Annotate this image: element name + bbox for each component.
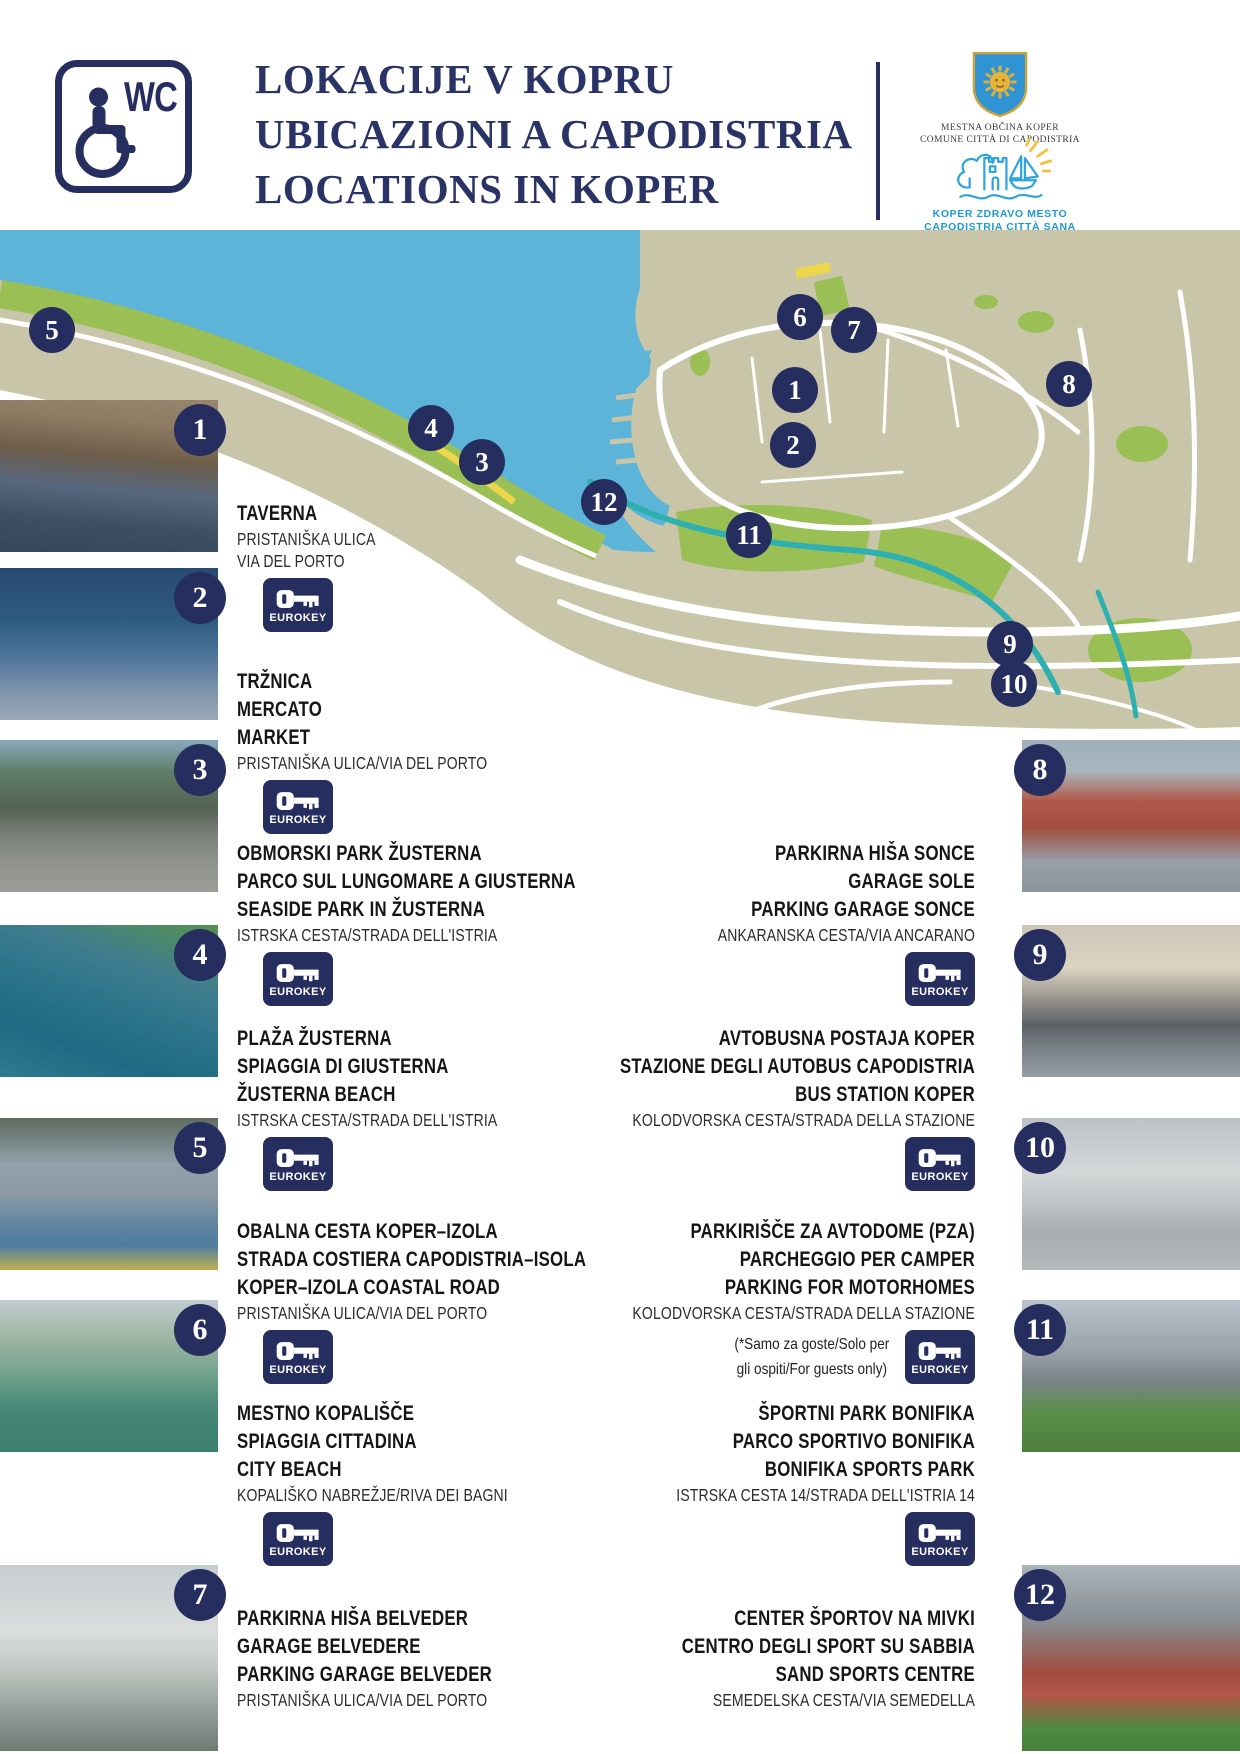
accessible-toilets-poster: WC LOKACIJE V KOPRU UBICAZIONI A CAPODIS… [0, 0, 1240, 1754]
location-name: CENTER ŠPORTOV NA MIVKI [355, 1605, 975, 1633]
location-name: PARKING FOR MOTORHOMES [355, 1274, 975, 1302]
location-name: STAZIONE DEGLI AUTOBUS CAPODISTRIA [355, 1053, 975, 1081]
location-name: SAND SPORTS CENTRE [355, 1661, 975, 1689]
location-name: PARKIRNA HIŠA SONCE [355, 840, 975, 868]
page-title: LOKACIJE V KOPRU UBICAZIONI A CAPODISTRI… [255, 52, 853, 217]
map-marker-5: 5 [29, 307, 75, 353]
header-divider [876, 62, 880, 220]
map-marker-number: 7 [847, 315, 861, 346]
wc-label: WC [124, 73, 177, 121]
location-name: PARKING GARAGE SONCE [355, 896, 975, 924]
location-name: BUS STATION KOPER [355, 1081, 975, 1109]
location-name: MERCATO [237, 696, 797, 724]
map-marker-7: 7 [831, 307, 877, 353]
location-address: ISTRSKA CESTA 14/STRADA DELL'ISTRIA 14 [355, 1484, 975, 1506]
location-name: AVTOBUSNA POSTAJA KOPER [355, 1025, 975, 1053]
map-marker-number: 8 [1062, 369, 1076, 400]
title-line-en: LOCATIONS IN KOPER [255, 162, 853, 217]
location-number-badge: 10 [1014, 1122, 1066, 1174]
key-icon [918, 1521, 962, 1545]
location-name: PARCO SPORTIVO BONIFIKA [355, 1428, 975, 1456]
map-marker-number: 6 [793, 302, 807, 333]
municipality-coat-of-arms-icon [971, 50, 1029, 118]
location-name: ŠPORTNI PARK BONIFIKA [355, 1400, 975, 1428]
location-number-badge: 11 [1014, 1304, 1066, 1356]
location-name: TAVERNA [237, 500, 797, 528]
eurokey-row: EUROKEY [355, 1512, 975, 1566]
location-entry-11: 11ŠPORTNI PARK BONIFIKAPARCO SPORTIVO BO… [0, 1300, 1240, 1550]
location-name: GARAGE SOLE [355, 868, 975, 896]
title-line-it: UBICAZIONI A CAPODISTRIA [255, 107, 853, 162]
municipality-logo: MESTNA OBČINA KOPER COMUNE CITTÀ DI CAPO… [900, 50, 1100, 146]
eurokey-label: EUROKEY [911, 1546, 968, 1558]
wheelchair-wc-icon: WC [55, 60, 192, 193]
location-photo: 2 [0, 568, 218, 720]
location-number-badge: 8 [1014, 744, 1066, 796]
location-name: PARKIRIŠČE ZA AVTODOME (PZA) [355, 1218, 975, 1246]
location-number-badge: 12 [1014, 1569, 1066, 1621]
location-address: PRISTANIŠKA ULICA [237, 528, 797, 550]
location-name: PARCHEGGIO PER CAMPER [355, 1246, 975, 1274]
location-photo: 11 [1022, 1300, 1240, 1452]
location-text: CENTER ŠPORTOV NA MIVKICENTRO DEGLI SPOR… [355, 1605, 975, 1711]
location-photo: 1 [0, 400, 218, 552]
location-number-badge: 2 [174, 572, 226, 624]
eurokey-badge: EUROKEY [905, 1512, 975, 1566]
location-photo: 8 [1022, 740, 1240, 892]
location-name: BONIFIKA SPORTS PARK [355, 1456, 975, 1484]
location-address: SEMEDELSKA CESTA/VIA SEMEDELLA [355, 1689, 975, 1711]
title-line-sl: LOKACIJE V KOPRU [255, 52, 853, 107]
location-photo: 10 [1022, 1118, 1240, 1270]
location-name: CENTRO DEGLI SPORT SU SABBIA [355, 1633, 975, 1661]
map-marker-6: 6 [777, 294, 823, 340]
location-text: ŠPORTNI PARK BONIFIKAPARCO SPORTIVO BONI… [355, 1400, 975, 1566]
healthy-city-logo: KOPER ZDRAVO MESTO CAPODISTRIA CITTÀ SAN… [900, 136, 1100, 234]
location-photo: 12 [1022, 1565, 1240, 1751]
location-number-badge: 1 [174, 404, 226, 456]
location-number-badge: 9 [1014, 929, 1066, 981]
location-entry-12: 12CENTER ŠPORTOV NA MIVKICENTRO DEGLI SP… [0, 1565, 1240, 1754]
location-photo: 9 [1022, 925, 1240, 1077]
location-name: TRŽNICA [237, 668, 797, 696]
healthy-city-art-icon [948, 136, 1052, 206]
map-marker-number: 5 [45, 315, 59, 346]
